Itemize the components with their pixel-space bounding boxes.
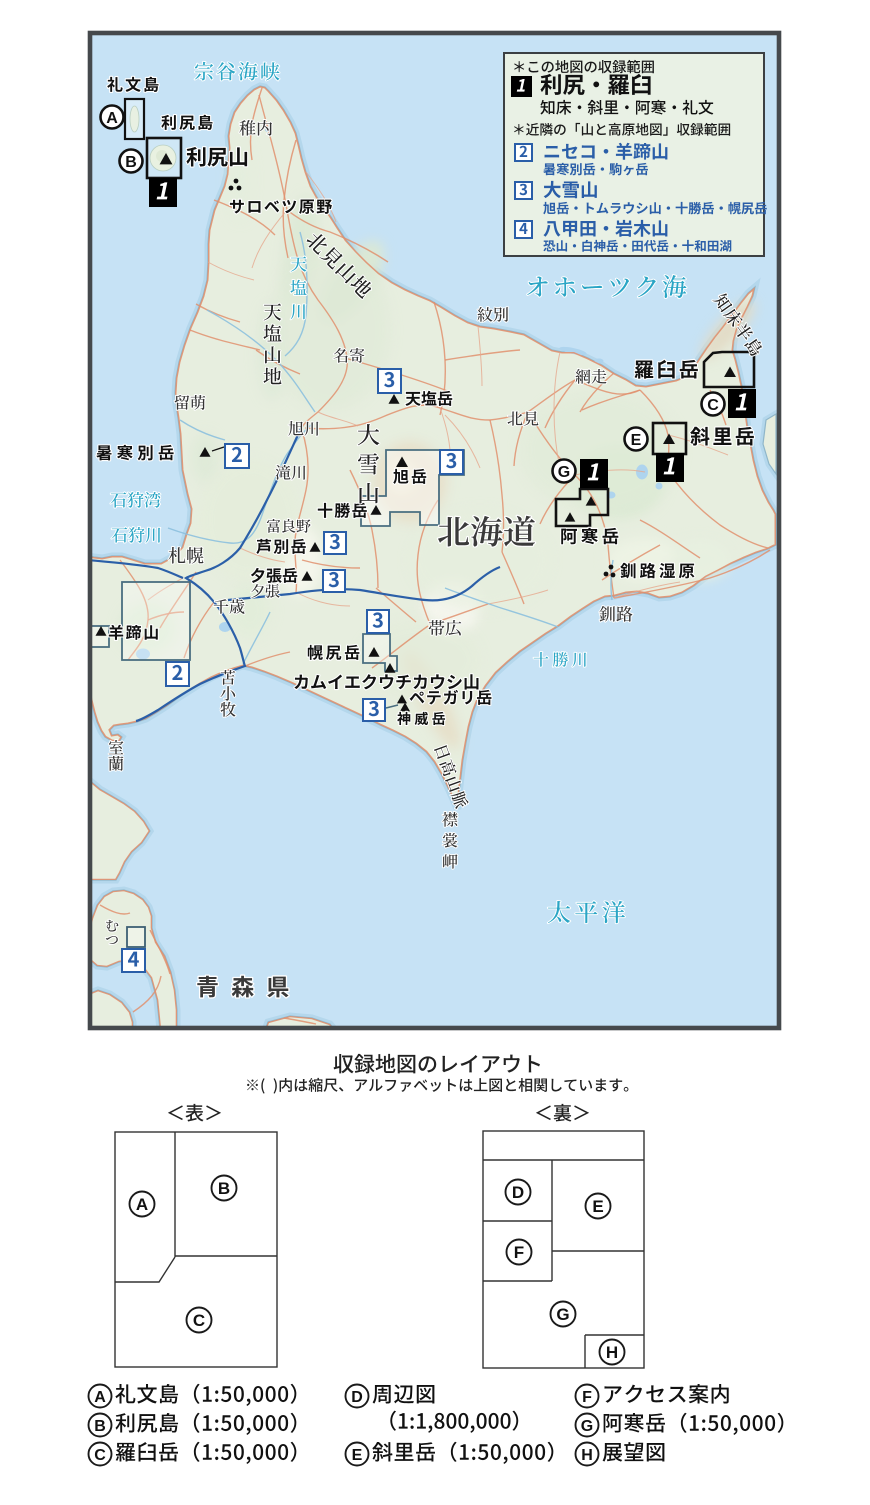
svg-text:H: H (606, 1343, 618, 1362)
svg-text:E: E (352, 1447, 363, 1464)
svg-text:B: B (218, 1179, 230, 1198)
svg-text:C: C (193, 1311, 205, 1330)
svg-text:A: A (136, 1195, 148, 1214)
svg-text:D: D (512, 1183, 524, 1202)
svg-text:H: H (581, 1447, 593, 1464)
svg-text:E: E (592, 1197, 603, 1216)
svg-text:C: C (707, 397, 719, 414)
svg-text:F: F (514, 1243, 524, 1262)
svg-text:G: G (581, 1418, 593, 1435)
svg-text:B: B (125, 154, 137, 171)
svg-text:A: A (94, 1389, 106, 1406)
svg-text:A: A (106, 110, 118, 127)
svg-text:G: G (556, 1305, 569, 1324)
svg-text:D: D (351, 1389, 363, 1406)
svg-text:E: E (631, 432, 642, 449)
svg-text:F: F (582, 1389, 592, 1406)
svg-text:G: G (558, 464, 570, 481)
svg-text:C: C (94, 1447, 106, 1464)
svg-text:B: B (94, 1418, 106, 1435)
